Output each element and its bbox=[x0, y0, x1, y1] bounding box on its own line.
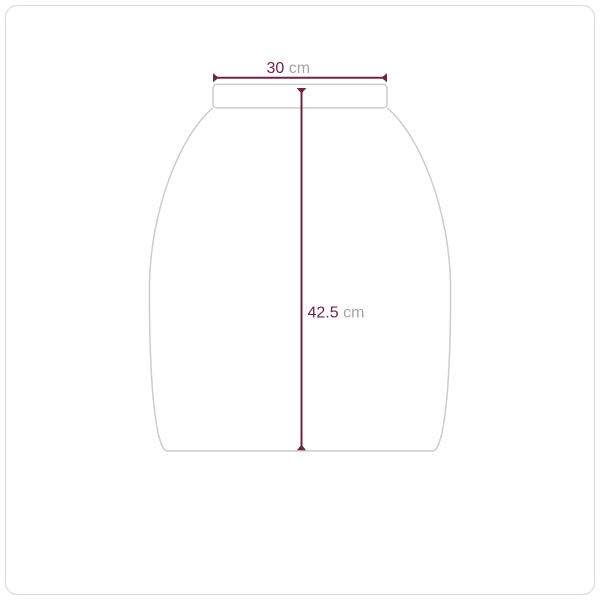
svg-text:30 cm: 30 cm bbox=[267, 60, 311, 77]
svg-text:42.5 cm: 42.5 cm bbox=[308, 304, 365, 321]
